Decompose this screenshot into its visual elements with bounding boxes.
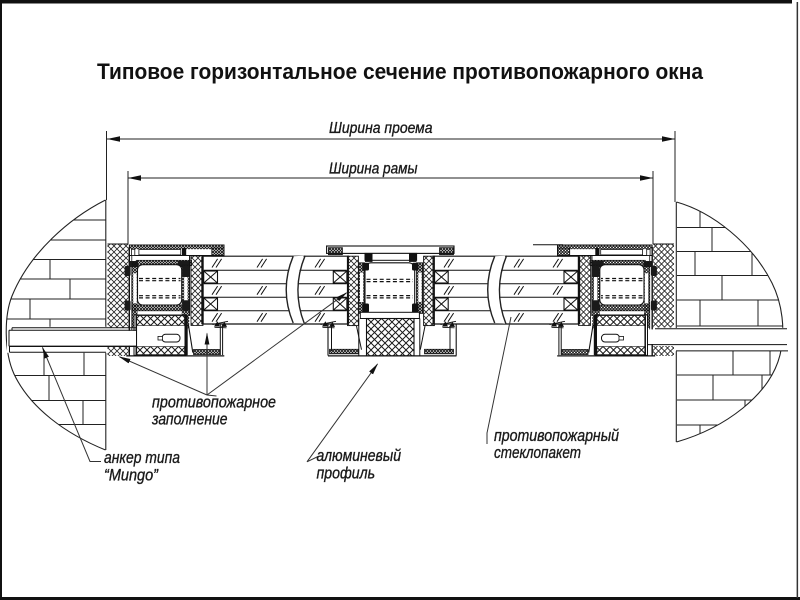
svg-text:противопожарный: противопожарный [494,427,619,445]
svg-text:стеклопакет: стеклопакет [494,444,581,462]
svg-text:противопожарное: противопожарное [152,394,276,412]
svg-text:Ширина проема: Ширина проема [329,120,433,137]
svg-text:профиль: профиль [317,465,376,483]
svg-text:“Mungo”: “Mungo” [104,467,159,485]
svg-text:Типовое горизонтальное сечение: Типовое горизонтальное сечение противопо… [97,59,703,84]
svg-text:заполнение: заполнение [151,411,227,429]
svg-text:Ширина рамы: Ширина рамы [329,161,418,178]
svg-text:анкер типа: анкер типа [104,449,180,467]
svg-text:алюминевый: алюминевый [317,447,402,465]
